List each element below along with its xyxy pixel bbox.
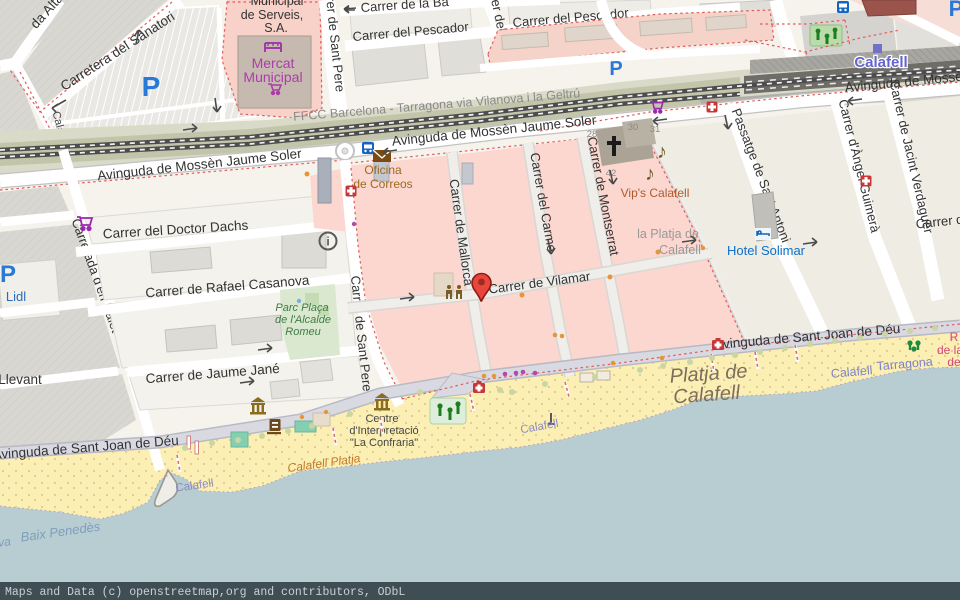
svg-text:de l'Alcalde: de l'Alcalde xyxy=(275,314,331,326)
svg-text:Oficina: Oficina xyxy=(364,163,402,177)
svg-text:Romeu: Romeu xyxy=(285,326,320,338)
svg-text:d'Interpretació: d'Interpretació xyxy=(349,425,418,437)
svg-text:"La Confraria": "La Confraria" xyxy=(350,437,418,449)
svg-text:P: P xyxy=(0,261,16,288)
svg-text:Hotel Solimar: Hotel Solimar xyxy=(727,243,806,258)
svg-text:Municipal: Municipal xyxy=(251,0,304,8)
svg-text:Vip's Calafell: Vip's Calafell xyxy=(621,186,690,200)
svg-text:la Platja de: la Platja de xyxy=(637,227,699,241)
svg-text:Llevant: Llevant xyxy=(0,372,42,387)
svg-text:30: 30 xyxy=(628,122,639,133)
svg-text:P: P xyxy=(949,0,960,21)
svg-text:Parc Plaça: Parc Plaça xyxy=(275,302,328,314)
svg-text:Municipal: Municipal xyxy=(243,69,302,85)
svg-text:Maps and Data (c) openstreetma: Maps and Data (c) openstreetmap,org and … xyxy=(5,586,405,599)
svg-text:31: 31 xyxy=(650,124,661,135)
svg-text:Calafell: Calafell xyxy=(854,54,907,71)
svg-text:S.A.: S.A. xyxy=(264,21,288,35)
svg-text:i: i xyxy=(326,235,329,249)
svg-text:♪: ♪ xyxy=(645,163,655,185)
svg-text:de Correos: de Correos xyxy=(353,177,412,191)
svg-text:de: de xyxy=(947,355,960,369)
svg-text:Calafell: Calafell xyxy=(673,382,742,409)
svg-text:Lidl: Lidl xyxy=(6,289,26,304)
svg-text:R: R xyxy=(950,330,959,344)
svg-text:de Serveis,: de Serveis, xyxy=(241,8,304,22)
svg-text:P: P xyxy=(142,71,161,102)
svg-text:♪: ♪ xyxy=(657,141,667,163)
svg-text:Calafell: Calafell xyxy=(659,243,701,257)
svg-text:28: 28 xyxy=(587,129,598,140)
